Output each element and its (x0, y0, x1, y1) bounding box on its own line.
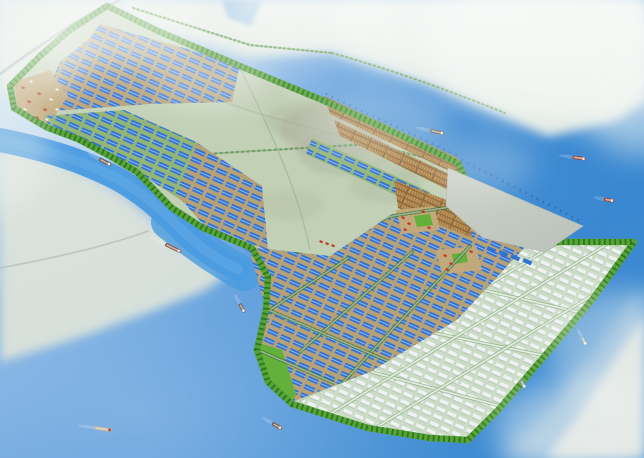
top-atmosphere-fade (0, 0, 644, 120)
ship-bridge (108, 428, 111, 431)
masterplan-aerial-rendering (0, 0, 644, 458)
ship-bridge (582, 157, 585, 160)
mottle-patch (256, 189, 324, 221)
ship-bridge (611, 199, 614, 202)
industrial-park-masterplan-svg (0, 0, 644, 458)
haze-blob (425, 137, 535, 193)
amenity-field-1 (414, 214, 433, 227)
